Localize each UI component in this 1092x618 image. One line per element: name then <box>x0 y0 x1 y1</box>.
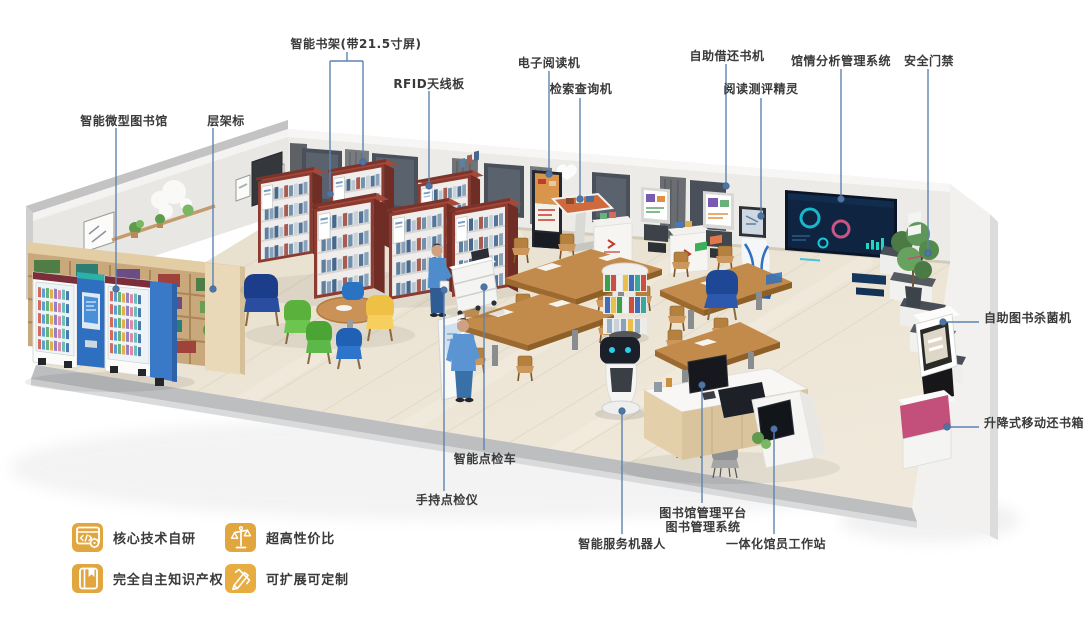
feature-cost-performance: 超高性价比 <box>225 523 335 552</box>
callout-label-handheld-scanner: 手持点检仪 <box>416 493 479 507</box>
callout-label-book-sterilizer: 自助图书杀菌机 <box>984 311 1072 325</box>
callout-label-management-platform: 图书馆管理平台 图书管理系统 <box>659 506 747 534</box>
blue-chair <box>342 282 364 300</box>
feature-label: 可扩展可定制 <box>266 569 349 588</box>
platform-line2: 图书管理系统 <box>659 520 747 534</box>
feature-label: 核心技术自研 <box>113 528 196 547</box>
crossed-pencils-icon <box>225 564 256 593</box>
feature-ip-rights: 完全自主知识产权 <box>72 564 223 593</box>
callout-label-micro-library: 智能微型图书馆 <box>80 114 168 128</box>
binder-cart <box>601 263 649 344</box>
balance-scale-icon <box>225 523 256 552</box>
callout-label-shelf-label: 层架标 <box>207 114 245 128</box>
callout-label-analytics-system: 馆情分析管理系统 <box>791 54 891 68</box>
partition-end-panel <box>205 263 245 375</box>
feature-label: 超高性价比 <box>266 528 335 547</box>
callout-label-security-gate: 安全门禁 <box>904 54 954 68</box>
smart-bookshelf <box>387 198 461 300</box>
callout-label-e-reader: 电子阅读机 <box>518 56 581 70</box>
feature-label: 完全自主知识产权 <box>113 569 223 588</box>
callout-label-reading-eval: 阅读测评精灵 <box>723 82 798 96</box>
callout-label-smart-bookshelf: 智能书架(带21.5寸屏) <box>290 37 421 51</box>
callout-label-staff-workstation: 一体化馆员工作站 <box>726 537 826 551</box>
callout-label-mobile-return-box: 升降式移动还书箱 <box>984 416 1084 430</box>
callout-label-search-kiosk: 检索查询机 <box>550 82 613 96</box>
book-copyright-icon <box>72 564 103 593</box>
e-reader-kiosk <box>532 170 562 249</box>
callout-label-inspection-cart: 智能点检车 <box>454 452 517 466</box>
callout-label-self-checkout: 自助借还书机 <box>689 49 764 63</box>
feature-core-tech: 核心技术自研 <box>72 523 196 552</box>
feature-customizable: 可扩展可定制 <box>225 564 349 593</box>
callout-label-rfid-antenna: RFID天线板 <box>393 77 464 91</box>
callout-label-service-robot: 智能服务机器人 <box>578 537 666 551</box>
platform-line1: 图书馆管理平台 <box>659 506 747 520</box>
smart-library-diagram: 智能书架(带21.5寸屏) RFID天线板 智能微型图书馆 层架标 电子阅读机 … <box>0 0 1092 618</box>
code-window-gear-icon <box>72 523 103 552</box>
wall-picture <box>236 175 250 201</box>
